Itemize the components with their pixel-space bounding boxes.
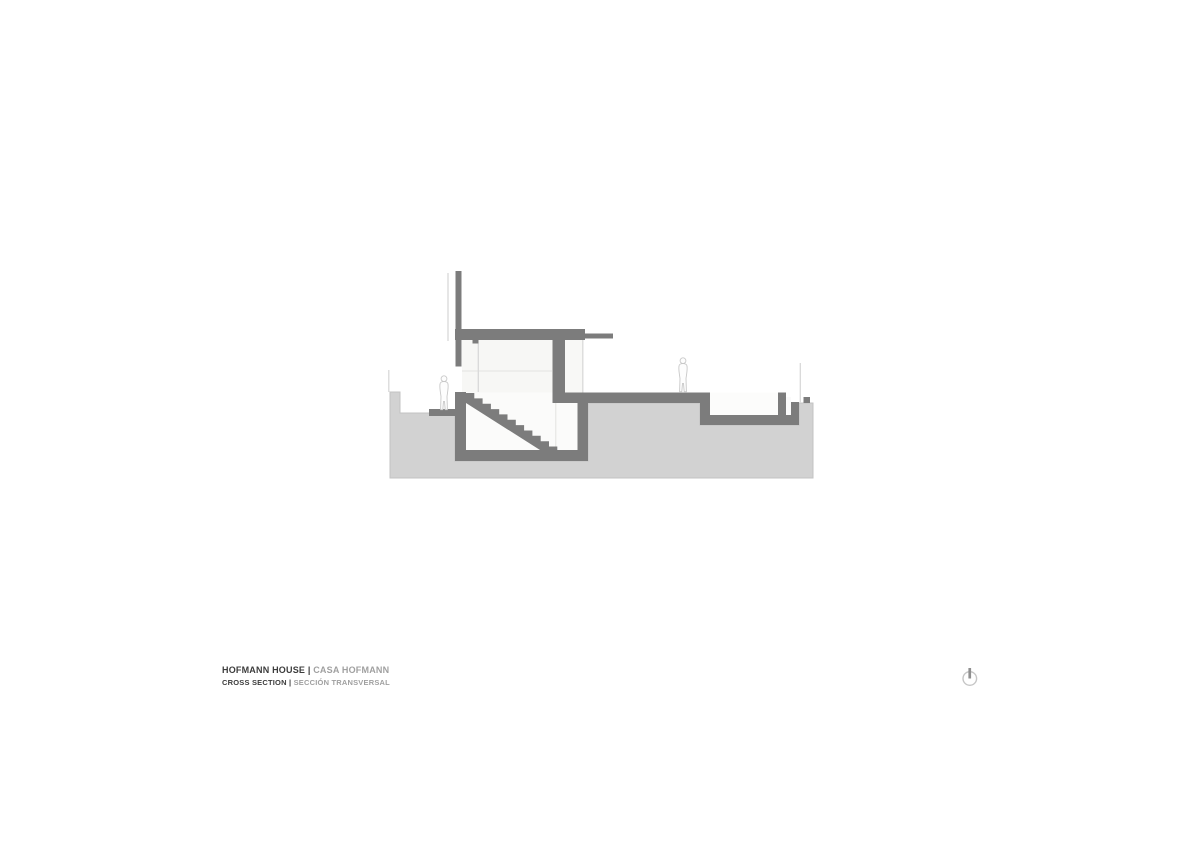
roof-slab bbox=[455, 329, 585, 340]
drawing-name-en: CROSS SECTION bbox=[222, 678, 287, 687]
human-figure-left bbox=[440, 376, 448, 410]
ground-edge-block bbox=[804, 397, 811, 403]
project-name-es: CASA HOFMANN bbox=[313, 665, 389, 675]
basement-right-wall bbox=[578, 401, 589, 460]
drain-slot bbox=[786, 397, 791, 415]
title-separator-1: | bbox=[308, 665, 311, 675]
retaining-curb bbox=[791, 402, 799, 425]
cross-section-drawing bbox=[0, 0, 1200, 849]
lightwell-interior bbox=[565, 340, 583, 393]
ground-floor-slab bbox=[553, 393, 701, 404]
drawing-title-line: CROSS SECTION | SECCIÓN TRANSVERSAL bbox=[222, 679, 390, 687]
title-block: HOFMANN HOUSE | CASA HOFMANN CROSS SECTI… bbox=[222, 666, 390, 687]
window-head-tab bbox=[473, 340, 479, 344]
basin-interior bbox=[710, 393, 778, 416]
drawing-sheet: HOFMANN HOUSE | CASA HOFMANN CROSS SECTI… bbox=[0, 0, 1200, 849]
basement-bottom-slab bbox=[455, 450, 588, 461]
project-name-en: HOFMANN HOUSE bbox=[222, 665, 305, 675]
canopy-slab bbox=[578, 334, 613, 339]
drawing-name-es: SECCIÓN TRANSVERSAL bbox=[294, 678, 390, 687]
title-separator-2: | bbox=[289, 678, 291, 687]
parapet-wall bbox=[456, 271, 462, 367]
project-title-line: HOFMANN HOUSE | CASA HOFMANN bbox=[222, 666, 390, 675]
human-figure-right bbox=[679, 358, 687, 392]
north-arrow-icon bbox=[963, 668, 977, 685]
basin-right-wall bbox=[778, 393, 786, 426]
